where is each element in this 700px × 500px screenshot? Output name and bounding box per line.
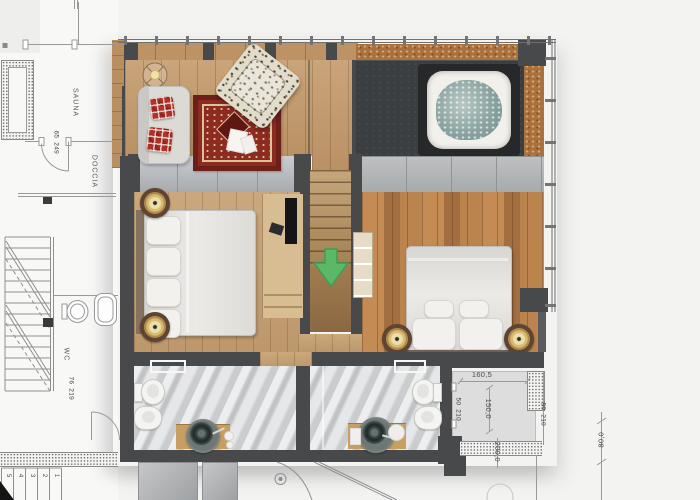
dim-value: 219 bbox=[67, 388, 74, 400]
cad-paper-topleft-wash bbox=[0, 0, 40, 53]
plaid-pillow-1 bbox=[149, 95, 176, 120]
stair-step-number-1: 1 bbox=[53, 471, 59, 481]
toilet-right-inner bbox=[417, 384, 429, 398]
dim-lower-right-door-b: 90 210 bbox=[539, 396, 546, 432]
dim-terrace-depth: 150,0 bbox=[484, 389, 492, 429]
vessel-sink-left bbox=[186, 419, 220, 453]
stair-step-number-3: 3 bbox=[29, 471, 35, 481]
dim-value: 76 bbox=[67, 376, 74, 384]
stair-step-number-4: 4 bbox=[17, 471, 23, 481]
dim-value: 249 bbox=[52, 142, 59, 154]
plaid-pillow-2 bbox=[146, 127, 173, 153]
wall-right-lower bbox=[538, 312, 546, 352]
towel-items-right bbox=[350, 428, 361, 445]
towel-rail-left bbox=[150, 360, 186, 373]
dim-walkway: 80,0 bbox=[597, 420, 605, 460]
dim-wc-door: 76 219 bbox=[67, 371, 74, 405]
dim-value: 65 bbox=[52, 130, 59, 138]
room-label-doccia: DOCCIA bbox=[91, 152, 98, 192]
lamp-left-bottom bbox=[144, 316, 166, 338]
soap-dish-left-1 bbox=[224, 431, 234, 441]
lamp-left-top bbox=[144, 192, 166, 214]
bed-right-pillow-small-2 bbox=[459, 300, 489, 318]
dim-sauna-door: 65 249 bbox=[52, 125, 59, 159]
shower-glass-line bbox=[322, 366, 324, 450]
jacuzzi-bubbles bbox=[436, 80, 502, 140]
toilet-left-inner bbox=[147, 384, 159, 398]
stair-step-number-2: 2 bbox=[41, 471, 47, 481]
tile-band-right bbox=[362, 156, 544, 194]
console-shelf-line-1 bbox=[264, 294, 302, 296]
tv-console bbox=[262, 194, 303, 318]
floor-plan-page: SAUNA DOCCIA WC 65 249 76 219 50 210 90 … bbox=[0, 0, 700, 500]
bed-left-pillow-1 bbox=[146, 216, 181, 245]
cad-bottom-doors bbox=[275, 462, 397, 500]
dim-value: 90 bbox=[539, 402, 546, 410]
wall-block-topright bbox=[518, 40, 546, 66]
bed-right-pillow-1 bbox=[412, 318, 456, 350]
dim-lower-right-door-a: 50 210 bbox=[454, 391, 461, 427]
ladder-shelf bbox=[353, 232, 373, 298]
toilet-right-tank bbox=[433, 383, 442, 402]
bed-left-pillow-3 bbox=[146, 278, 181, 307]
dim-terrace-width: 160,5 bbox=[460, 371, 504, 379]
room-label-sauna: SAUNA bbox=[72, 83, 79, 123]
soap-round-right bbox=[388, 424, 405, 441]
dim-terrace-side: 200,0 bbox=[493, 432, 501, 472]
lamp-right-right bbox=[508, 328, 530, 350]
wall-post-d bbox=[326, 42, 337, 60]
cad-hatch-band-left bbox=[0, 452, 118, 467]
hall-floor-upper bbox=[312, 60, 352, 170]
console-chair bbox=[269, 222, 284, 236]
dim-value: 210 bbox=[539, 414, 546, 426]
bidet-right-inner bbox=[421, 411, 434, 423]
armchair-cushion bbox=[229, 57, 288, 116]
shower-stall-right bbox=[202, 462, 238, 500]
stair-down-arrow-icon bbox=[312, 248, 350, 288]
towel-rail-right bbox=[394, 360, 426, 373]
bathroom-divider-wall bbox=[296, 366, 310, 450]
dim-value: 50 bbox=[454, 397, 461, 405]
bed-right-pillow-2 bbox=[459, 318, 503, 350]
bed-left-duvet-fold bbox=[186, 212, 189, 332]
cad-sauna-inner bbox=[8, 67, 27, 133]
top-right-wood-beam bbox=[356, 44, 534, 60]
lamp-right-left bbox=[386, 328, 408, 350]
cad-sauna-hatched-wall bbox=[1, 60, 34, 140]
wall-left-lower bbox=[120, 156, 134, 452]
chaise-backrest bbox=[139, 87, 149, 163]
bed-right-pillow-small-1 bbox=[424, 300, 454, 318]
tv-screen bbox=[285, 198, 297, 244]
stair-step-number-5: 5 bbox=[5, 471, 11, 481]
jacuzzi bbox=[418, 64, 520, 156]
bed-left-headboard bbox=[136, 210, 144, 334]
dim-value: 210 bbox=[454, 409, 461, 421]
console-shelf-line-2 bbox=[264, 306, 302, 308]
bidet-left-inner bbox=[142, 411, 155, 423]
bathroom-bottom-wall bbox=[120, 450, 458, 462]
room-label-wc: WC bbox=[63, 345, 70, 365]
wall-block-right-mid bbox=[520, 288, 548, 312]
soap-dish-left-2 bbox=[226, 441, 234, 449]
bed-left-pillow-2 bbox=[146, 247, 181, 276]
bed-right-duvet-fold bbox=[408, 258, 508, 261]
corridor-floor bbox=[298, 334, 364, 352]
shower-stall-left bbox=[138, 462, 198, 500]
